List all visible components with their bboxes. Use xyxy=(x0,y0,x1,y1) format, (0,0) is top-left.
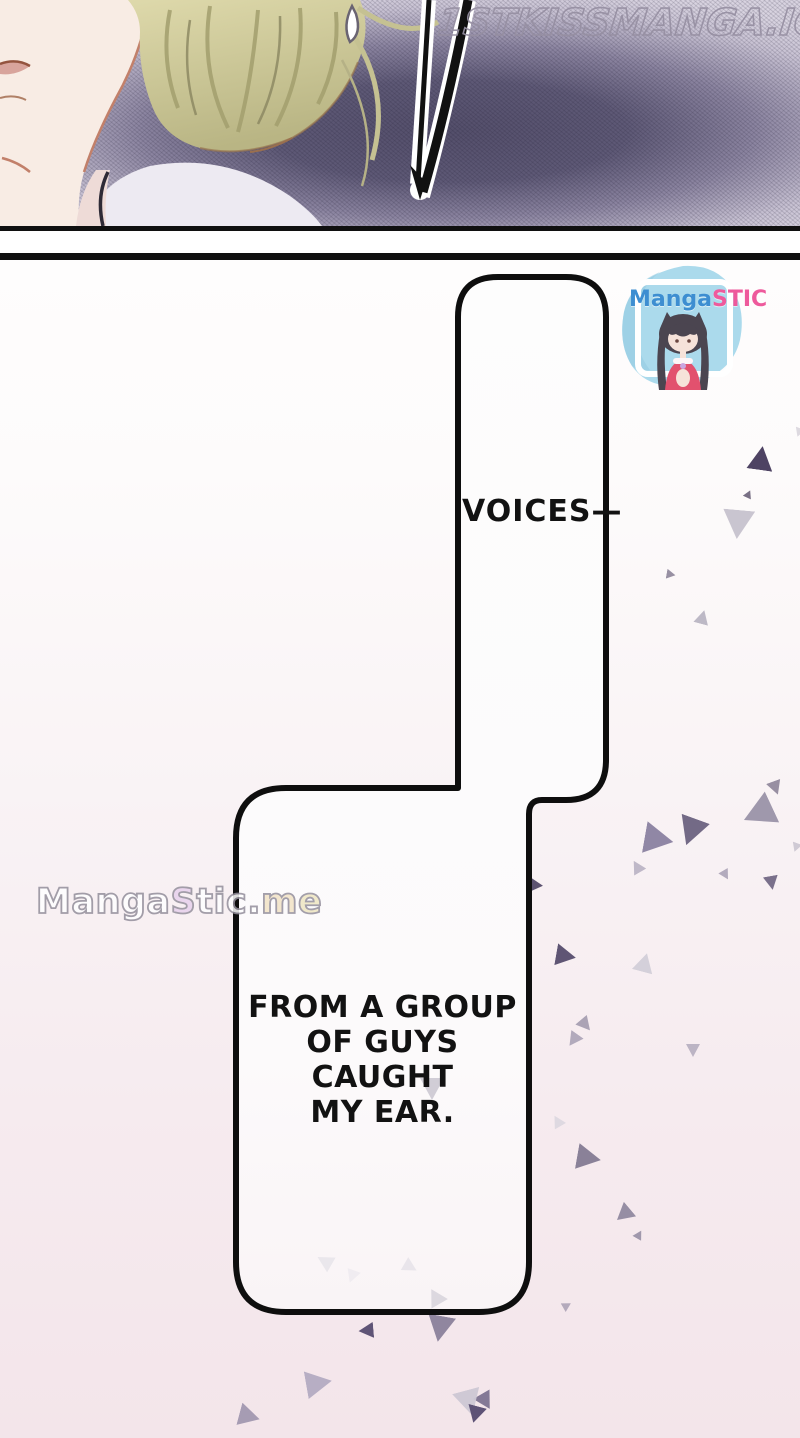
mangastic-sticker: MangaSTIC xyxy=(616,262,750,396)
manga-page: 1STKISSMANGA.IO VOICES— FROM A GROUP OF … xyxy=(0,0,800,1438)
text-part: tic xyxy=(196,882,247,922)
top-panel-artwork: 1STKISSMANGA.IO xyxy=(0,0,800,231)
watermark-top: 1STKISSMANGA.IO xyxy=(436,1,800,44)
text-part: Manga xyxy=(36,882,171,922)
merged-speech-bubble xyxy=(236,277,606,1312)
text-part: Manga xyxy=(629,287,712,312)
speech-bubbles-outline xyxy=(0,260,800,1438)
section-divider-line xyxy=(0,253,800,260)
text-part: . xyxy=(247,882,261,922)
text-part: S xyxy=(171,882,197,922)
watermark-bottom: MangaStic.me xyxy=(36,882,322,922)
sticker-art xyxy=(616,262,750,396)
speech-text-group: FROM A GROUP OF GUYS CAUGHT MY EAR. xyxy=(236,990,529,1130)
text-part: e xyxy=(298,882,322,922)
text-part: m xyxy=(261,882,298,922)
sticker-brand-text: MangaSTIC xyxy=(629,287,767,312)
text-part: STIC xyxy=(712,287,767,312)
lower-panel: VOICES— FROM A GROUP OF GUYS CAUGHT MY E… xyxy=(0,260,800,1438)
speech-text-voices: VOICES— xyxy=(462,494,622,529)
